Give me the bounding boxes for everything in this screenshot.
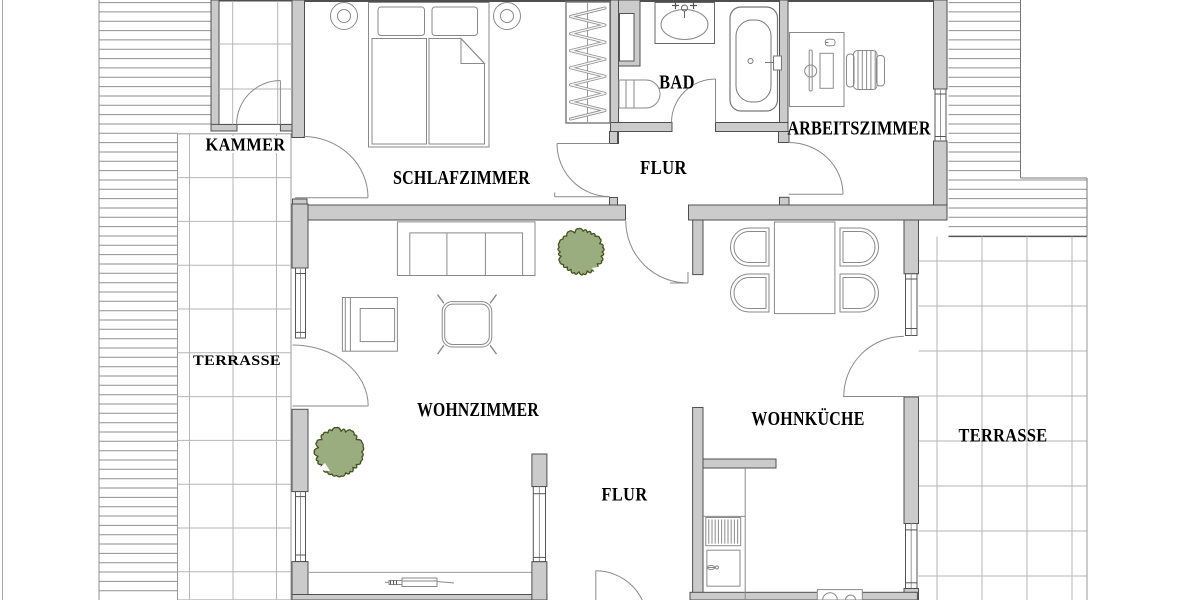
svg-text:WOHNZIMMER: WOHNZIMMER xyxy=(417,398,539,420)
svg-text:TERRASSE: TERRASSE xyxy=(193,352,281,368)
svg-text:ARBEITSZIMMER: ARBEITSZIMMER xyxy=(787,117,931,139)
svg-text:SCHLAFZIMMER: SCHLAFZIMMER xyxy=(393,166,531,188)
svg-text:BAD: BAD xyxy=(659,71,695,93)
svg-text:FLUR: FLUR xyxy=(640,157,687,179)
svg-text:TERRASSE: TERRASSE xyxy=(959,424,1048,445)
svg-text:WOHNKÜCHE: WOHNKÜCHE xyxy=(751,407,864,429)
svg-text:FLUR: FLUR xyxy=(601,484,647,505)
svg-text:KAMMER: KAMMER xyxy=(206,135,286,155)
